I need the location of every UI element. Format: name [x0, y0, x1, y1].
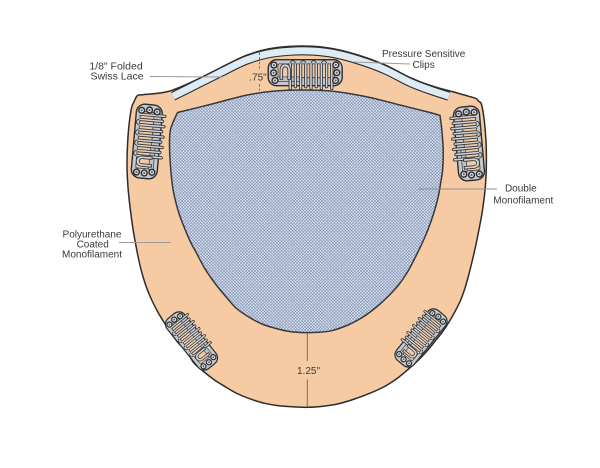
- svg-text:Monofilament: Monofilament: [62, 250, 122, 261]
- svg-text:1.25": 1.25": [297, 366, 320, 377]
- svg-text:Double: Double: [505, 184, 537, 195]
- svg-text:.75": .75": [249, 73, 267, 84]
- svg-text:Pressure Sensitive: Pressure Sensitive: [382, 49, 466, 60]
- svg-text:Swiss Lace: Swiss Lace: [90, 71, 143, 83]
- svg-text:Clips: Clips: [412, 60, 434, 71]
- svg-text:Monofilament: Monofilament: [493, 195, 553, 206]
